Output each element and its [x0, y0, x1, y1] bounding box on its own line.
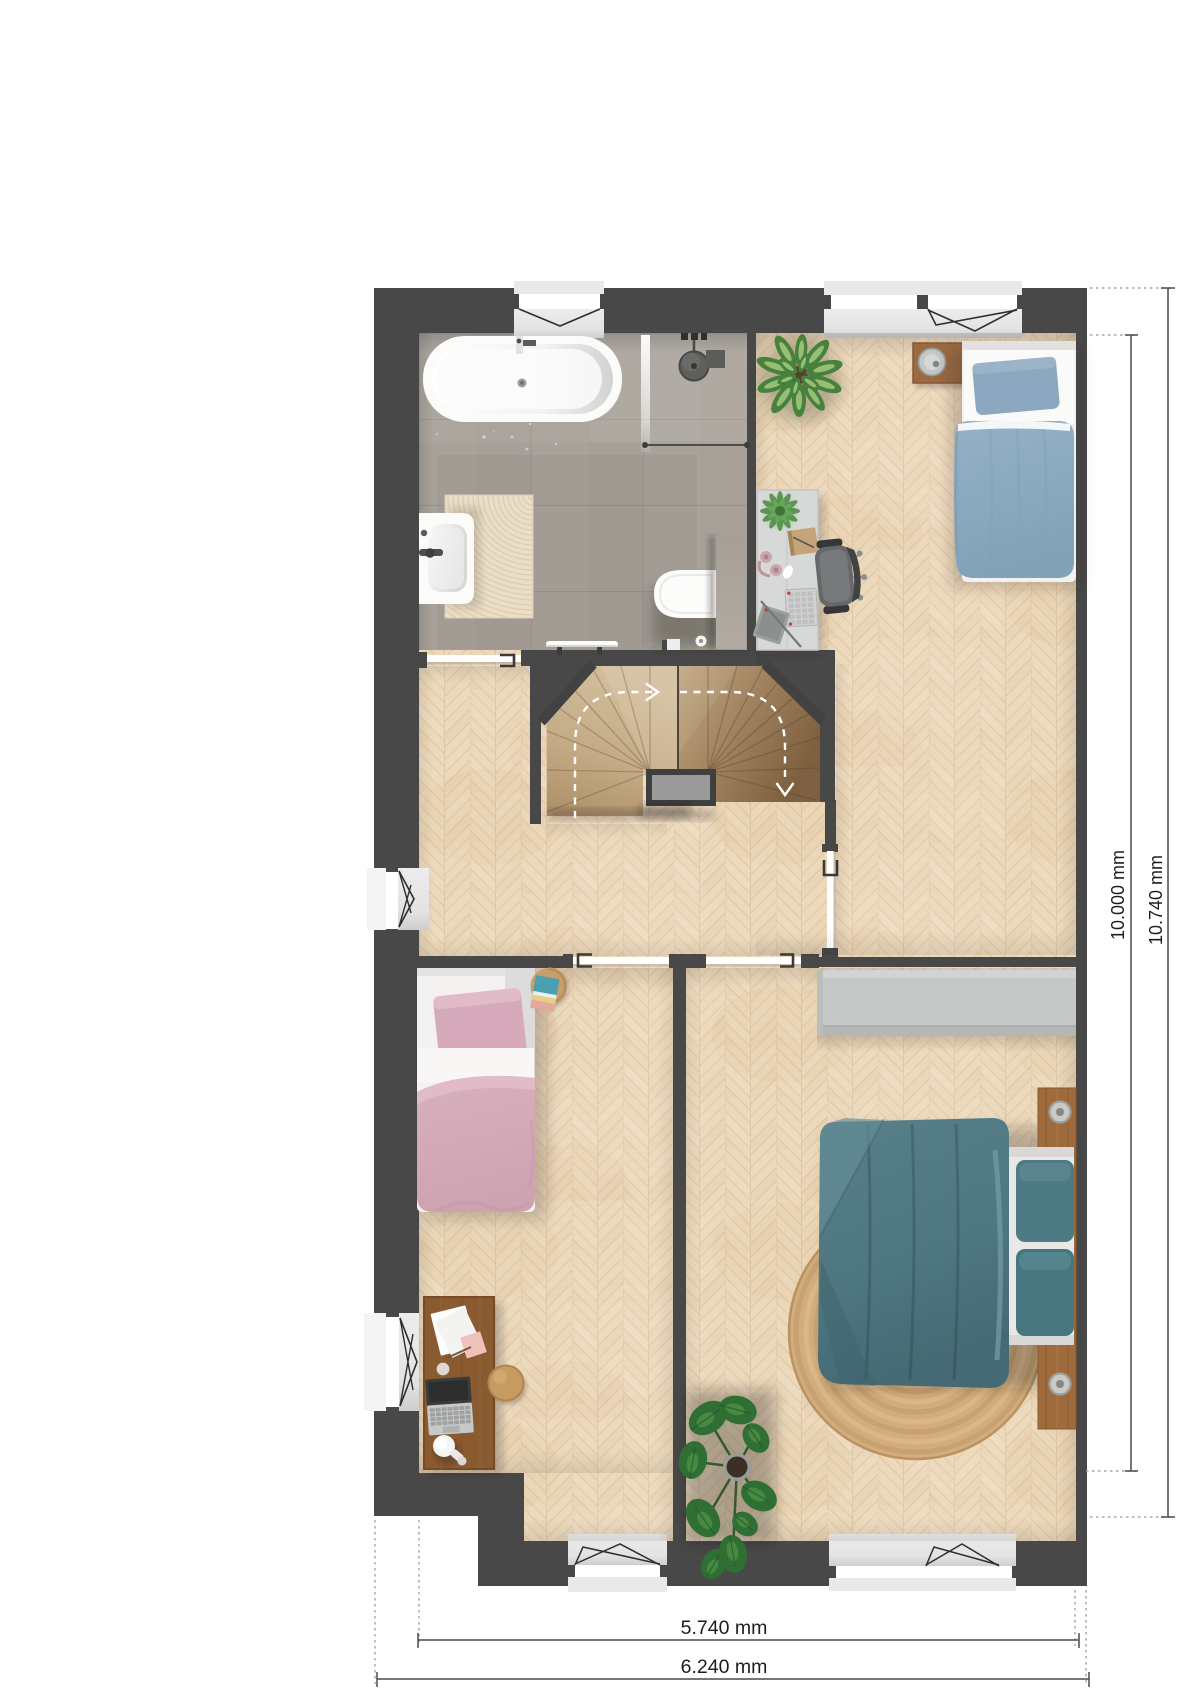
svg-text:5.740 mm: 5.740 mm: [681, 1617, 768, 1639]
svg-text:10.740 mm: 10.740 mm: [1146, 855, 1166, 945]
svg-text:6.240 mm: 6.240 mm: [681, 1656, 768, 1678]
svg-text:10.000 mm: 10.000 mm: [1108, 850, 1128, 940]
